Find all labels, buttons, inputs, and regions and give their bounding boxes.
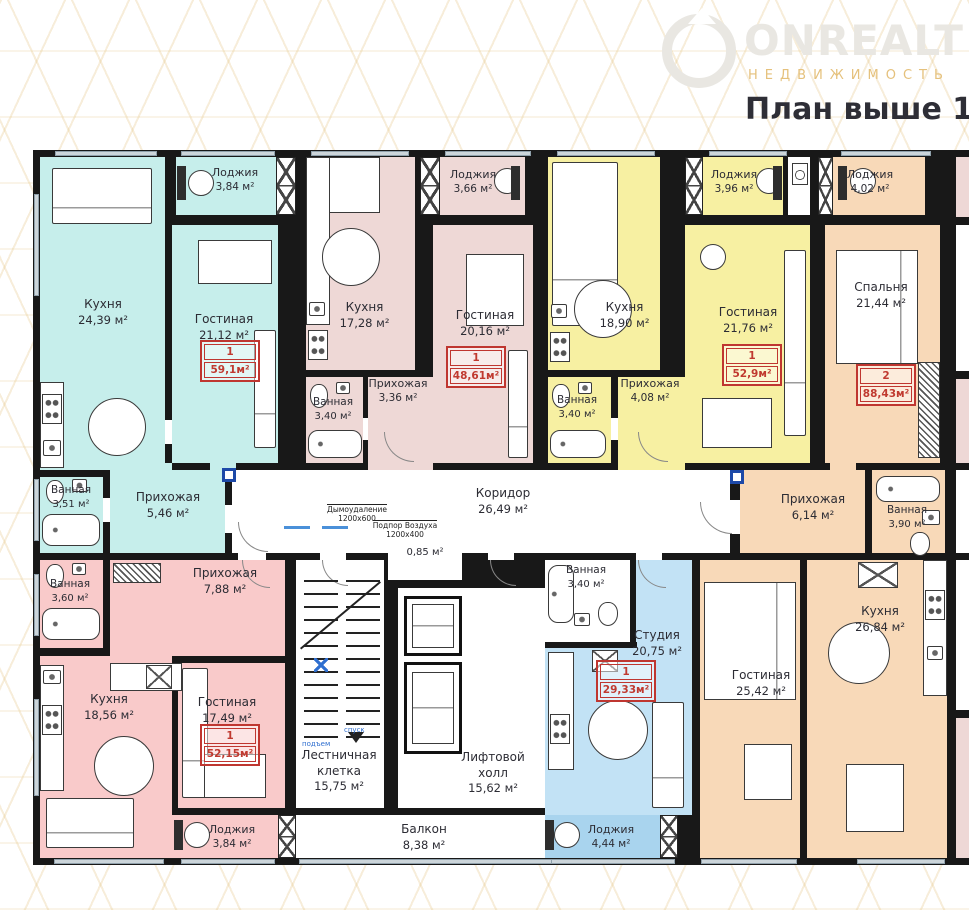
toilet-icon — [910, 532, 930, 556]
stair-mark-icon — [314, 658, 328, 672]
window-icon — [446, 152, 530, 155]
window-icon — [710, 152, 786, 155]
logo-brand: ONREALT — [744, 16, 964, 65]
room-label-apt4-bath: Ванная3,90 м² — [872, 504, 942, 531]
dining-table-icon — [744, 744, 792, 800]
washer-icon — [792, 163, 808, 185]
window-cross-icon — [685, 157, 703, 215]
room-label-apt2-bath: Ванная3,40 м² — [302, 396, 364, 423]
window-icon — [182, 152, 274, 155]
wardrobe-icon — [918, 362, 940, 458]
room-label-stairs: Лестничная клетка15,75 м² — [296, 748, 382, 795]
electrical-panel-icon — [222, 468, 236, 482]
room-label-apt3-loggia: Лоджия3,96 м² — [702, 168, 766, 197]
room-label-corridor: Коридор26,49 м² — [460, 486, 546, 517]
room-label-balcony: Балкон8,38 м² — [378, 822, 470, 853]
room-label-apt3-hall: Прихожая4,08 м² — [612, 377, 688, 406]
sink-icon — [72, 563, 86, 575]
door-opening — [611, 418, 618, 440]
room-label-apt6-bath: Ванная3,40 м² — [550, 564, 622, 591]
room-label-apt2-hall: Прихожая3,36 м² — [360, 377, 436, 406]
door-opening — [320, 553, 346, 560]
wardrobe-icon — [113, 563, 161, 583]
round-table-icon — [94, 736, 154, 796]
window-icon — [35, 480, 38, 540]
stove-icon — [925, 590, 945, 620]
room-label-apt1-hall: Прихожая5,46 м² — [128, 490, 208, 521]
sink-icon — [43, 670, 61, 684]
sink-icon — [336, 382, 350, 394]
round-table-icon — [322, 228, 380, 286]
cabinet-icon — [511, 166, 520, 200]
window-icon — [182, 860, 274, 863]
window-icon — [552, 860, 674, 863]
room-neighbour-fragment — [956, 560, 969, 710]
armchair-icon — [700, 244, 726, 270]
room-neighbour-fragment — [956, 470, 969, 553]
vent-box-icon — [858, 562, 898, 588]
sofa-icon — [784, 250, 806, 436]
window-cross-icon — [818, 157, 833, 215]
dining-table-icon — [702, 398, 772, 448]
sofa-icon — [508, 350, 528, 458]
apartment-badge-2: 148,61м² — [446, 346, 506, 388]
window-icon — [312, 152, 408, 155]
kitchen-counter-icon — [923, 560, 947, 696]
room-label-apt4-living: Гостиная25,42 м² — [718, 668, 804, 699]
apartment-badge-6: 129,33м² — [596, 660, 656, 702]
cabinet-icon — [545, 820, 554, 850]
cabinet-icon — [177, 166, 186, 200]
bathtub-icon — [876, 476, 940, 502]
room-label-apt4-kitchen: Кухня26,84 м² — [840, 604, 920, 635]
room-label-apt6-loggia: Лоджия4,44 м² — [578, 823, 644, 852]
door-opening — [225, 505, 232, 533]
door-opening — [165, 420, 172, 444]
room-label-apt5-hall: Прихожая7,88 м² — [180, 566, 270, 597]
sink-icon — [927, 646, 943, 660]
room-label-apt3-kitchen: Кухня18,90 м² — [582, 300, 667, 331]
door-opening — [103, 498, 110, 522]
window-cross-icon — [420, 157, 440, 215]
dining-table-icon — [198, 240, 272, 284]
sink-icon — [574, 613, 590, 626]
room-label-apt3-living: Гостиная21,76 м² — [702, 305, 794, 336]
apartment-badge-5: 152,15м² — [200, 724, 260, 766]
stove-icon — [550, 714, 570, 744]
room-label-closet: 0,85 м² — [396, 546, 454, 560]
room-label-apt5-loggia: Лоджия3,84 м² — [196, 823, 268, 852]
room-label-apt2-loggia: Лоджия3,66 м² — [440, 168, 506, 197]
window-icon — [55, 860, 163, 863]
door-opening — [636, 463, 664, 470]
sofa-icon — [52, 168, 152, 224]
room-label-apt1-loggia: Лоджия3,84 м² — [196, 166, 274, 195]
sofa-icon — [652, 702, 684, 808]
door-opening — [488, 553, 514, 560]
round-table-icon — [588, 700, 648, 760]
room-label-apt2-kitchen: Кухня17,28 м² — [322, 300, 407, 331]
door-opening — [238, 553, 266, 560]
logo-roof-icon — [688, 8, 716, 24]
logo-house-icon — [662, 14, 736, 88]
toilet-icon — [598, 602, 618, 626]
room-label-apt5-living: Гостиная17,49 м² — [180, 695, 274, 726]
door-opening — [636, 553, 662, 560]
room-label-apt1-kitchen: Кухня24,39 м² — [48, 297, 158, 328]
vent-box-icon — [146, 665, 172, 689]
page-title: План выше 1 эт — [745, 92, 969, 127]
vent-mark — [284, 526, 310, 529]
bathtub-icon — [42, 514, 100, 546]
room-label-apt6-studio: Студия20,75 м² — [618, 628, 696, 659]
room-label-apt2-living: Гостиная20,16 м² — [440, 308, 530, 339]
bathtub-icon — [308, 430, 362, 458]
round-table-icon — [88, 398, 146, 456]
window-cross-icon — [276, 157, 296, 215]
room-label-apt4-bedroom: Спальня21,44 м² — [838, 280, 924, 311]
electrical-panel-icon — [730, 470, 744, 484]
sink-icon — [551, 304, 567, 318]
stove-icon — [42, 705, 62, 735]
room-neighbour-fragment — [956, 379, 969, 463]
dining-table-icon — [846, 764, 904, 832]
elevator-car-icon — [412, 672, 454, 744]
room-label-apt5-bath: Ванная3,60 м² — [38, 578, 102, 605]
logo-tagline: НЕДВИЖИМОСТЬ — [748, 68, 950, 83]
room-neighbour-fragment — [956, 718, 969, 858]
sofa-icon — [46, 798, 134, 848]
window-icon — [35, 195, 38, 295]
cabinet-icon — [773, 166, 782, 200]
window-cross-icon — [660, 815, 678, 858]
stairs-down-note: спуск — [344, 726, 365, 734]
window-icon — [56, 152, 156, 155]
door-opening — [830, 463, 856, 470]
window-cross-icon — [278, 815, 296, 858]
kitchen-counter-icon — [548, 652, 574, 770]
room-label-apt5-kitchen: Кухня18,56 м² — [64, 692, 154, 723]
stove-icon — [42, 394, 62, 424]
apartment-badge-1: 159,1м² — [200, 340, 260, 382]
bathtub-icon — [550, 430, 606, 458]
cabinet-icon — [174, 820, 183, 850]
window-icon — [842, 152, 930, 155]
air-supply-note: Подпор Воздуха1200х400 — [370, 520, 440, 540]
stove-icon — [550, 332, 570, 362]
sink-icon — [578, 382, 592, 394]
window-icon — [702, 860, 796, 863]
bathtub-icon — [42, 608, 100, 640]
vent-mark — [322, 526, 348, 529]
sink-icon — [43, 440, 61, 456]
window-icon — [35, 700, 38, 795]
door-opening — [382, 463, 410, 470]
apartment-badge-3: 152,9м² — [722, 344, 782, 386]
armchair-icon — [554, 822, 580, 848]
room-label-apt3-bath: Ванная3,40 м² — [544, 394, 610, 421]
window-icon — [858, 860, 944, 863]
room-label-apt4-loggia: Лоджия4,02 м² — [838, 168, 902, 197]
room-neighbour-fragment — [956, 157, 969, 217]
room-neighbour-fragment — [956, 225, 969, 371]
floorplan-page: ONREALT НЕДВИЖИМОСТЬ План выше 1 эт — [0, 0, 969, 910]
elevator-car-icon — [412, 604, 454, 648]
stove-icon — [308, 330, 328, 360]
window-icon — [558, 152, 654, 155]
room-label-apt4-hall: Прихожая6,14 м² — [770, 492, 856, 523]
room-label-lift-hall: Лифтовой холл15,62 м² — [450, 750, 536, 797]
apartment-badge-4: 288,43м² — [856, 364, 916, 406]
stairs-up-note: подъем — [302, 740, 330, 748]
room-label-apt1-bath: Ванная3,51 м² — [40, 484, 102, 511]
room-label-apt1-living: Гостиная21,12 м² — [178, 312, 270, 343]
